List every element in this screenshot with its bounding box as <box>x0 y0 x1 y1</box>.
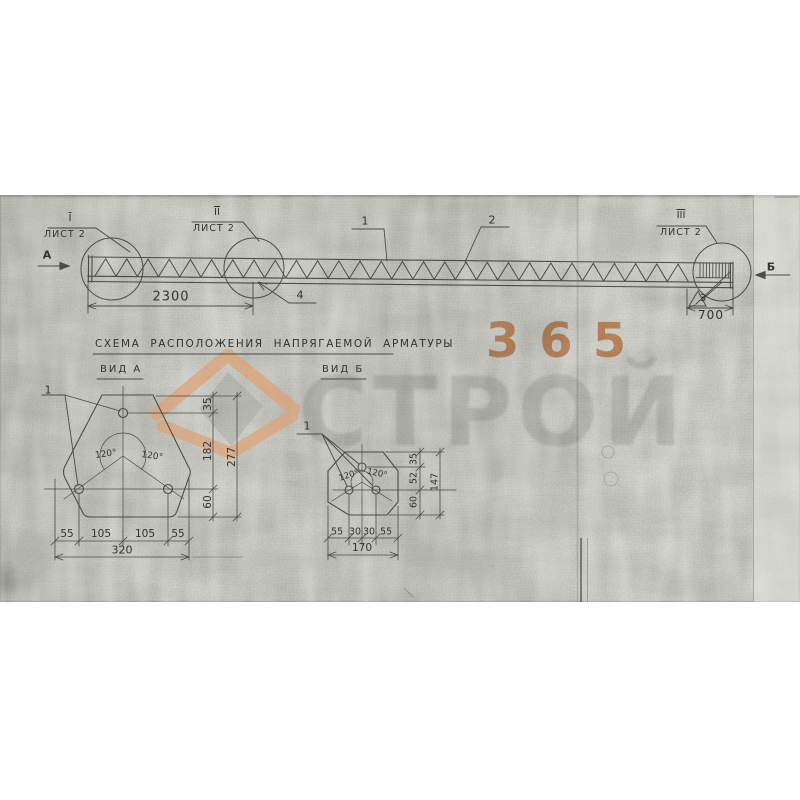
view-b-dim-55-left: 55 <box>331 527 343 537</box>
view-a-dim-277: 277 <box>227 447 238 467</box>
view-b-dim-147: 147 <box>430 473 440 491</box>
detail-marker-2: II <box>214 208 220 218</box>
view-b-dim-30-right: 30 <box>363 527 375 537</box>
detail-marker-1: I <box>69 214 72 224</box>
pole-callout-2: 2 <box>489 215 496 226</box>
view-a-dim-60: 60 <box>203 495 214 508</box>
view-a-dim-182: 182 <box>203 441 214 461</box>
drawing-title: СХЕМА РАСПОЛОЖЕНИЯ НАПРЯГАЕМОЙ АРМАТУРЫ <box>95 339 454 350</box>
view-a-label: ВИД А <box>100 365 142 375</box>
view-b-callout-1: 1 <box>304 421 311 432</box>
section-letter-b: Б <box>767 262 775 273</box>
pole-callout-4: 4 <box>297 290 304 301</box>
detail-marker-1-sheet: ЛИСТ 2 <box>44 230 86 240</box>
view-a-dim-320: 320 <box>112 545 133 556</box>
view-a-dim-55-right: 55 <box>171 529 184 540</box>
view-b-dim-60: 60 <box>409 496 419 508</box>
callout-4-leader <box>258 282 316 303</box>
end-anchor-hatch <box>700 263 729 277</box>
view-b-dim-170: 170 <box>352 543 372 554</box>
pole-callout-1: 1 <box>362 216 369 227</box>
view-a-plate <box>42 386 218 529</box>
scanned-drawing-page: 365 СТРОЙ <box>0 0 800 800</box>
view-b-label: ВИД Б <box>322 365 364 375</box>
section-letter-a: А <box>43 250 52 261</box>
view-a-dim-105-left: 105 <box>91 529 111 540</box>
view-b-dimensions <box>324 448 444 560</box>
left-anchor-plate <box>88 256 92 283</box>
callout-1-leader <box>352 229 387 261</box>
section-arrow-a <box>38 263 69 270</box>
detail-marker-2-sheet: ЛИСТ 2 <box>193 224 235 234</box>
photo-artifacts <box>404 197 798 597</box>
detail-marker-3: III <box>677 211 686 221</box>
view-b-dim-35: 35 <box>409 453 419 465</box>
callout-2-leader <box>465 227 509 262</box>
detail-circle-2 <box>224 238 284 298</box>
view-a-dim-105-right: 105 <box>135 529 155 540</box>
drawing-linework <box>0 0 800 800</box>
dim-2300: 2300 <box>152 291 189 304</box>
view-b-dim-55-right: 55 <box>380 527 392 537</box>
view-a-dim-35: 35 <box>203 397 214 410</box>
right-anchor-plate <box>730 262 733 289</box>
view-a-callout-1: 1 <box>45 385 52 396</box>
view-b-callout-leader <box>297 434 372 486</box>
dim-700: 700 <box>698 309 724 321</box>
view-b-dim-52: 52 <box>409 472 419 484</box>
view-a-callout-leader <box>42 395 120 486</box>
view-b-dim-30-left: 30 <box>349 527 361 537</box>
detail-marker-3-sheet: ЛИСТ 2 <box>660 228 702 238</box>
view-a-dim-55-left: 55 <box>60 529 73 540</box>
pole-elevation <box>88 256 733 289</box>
pole-callout-3: 3 <box>700 294 706 304</box>
